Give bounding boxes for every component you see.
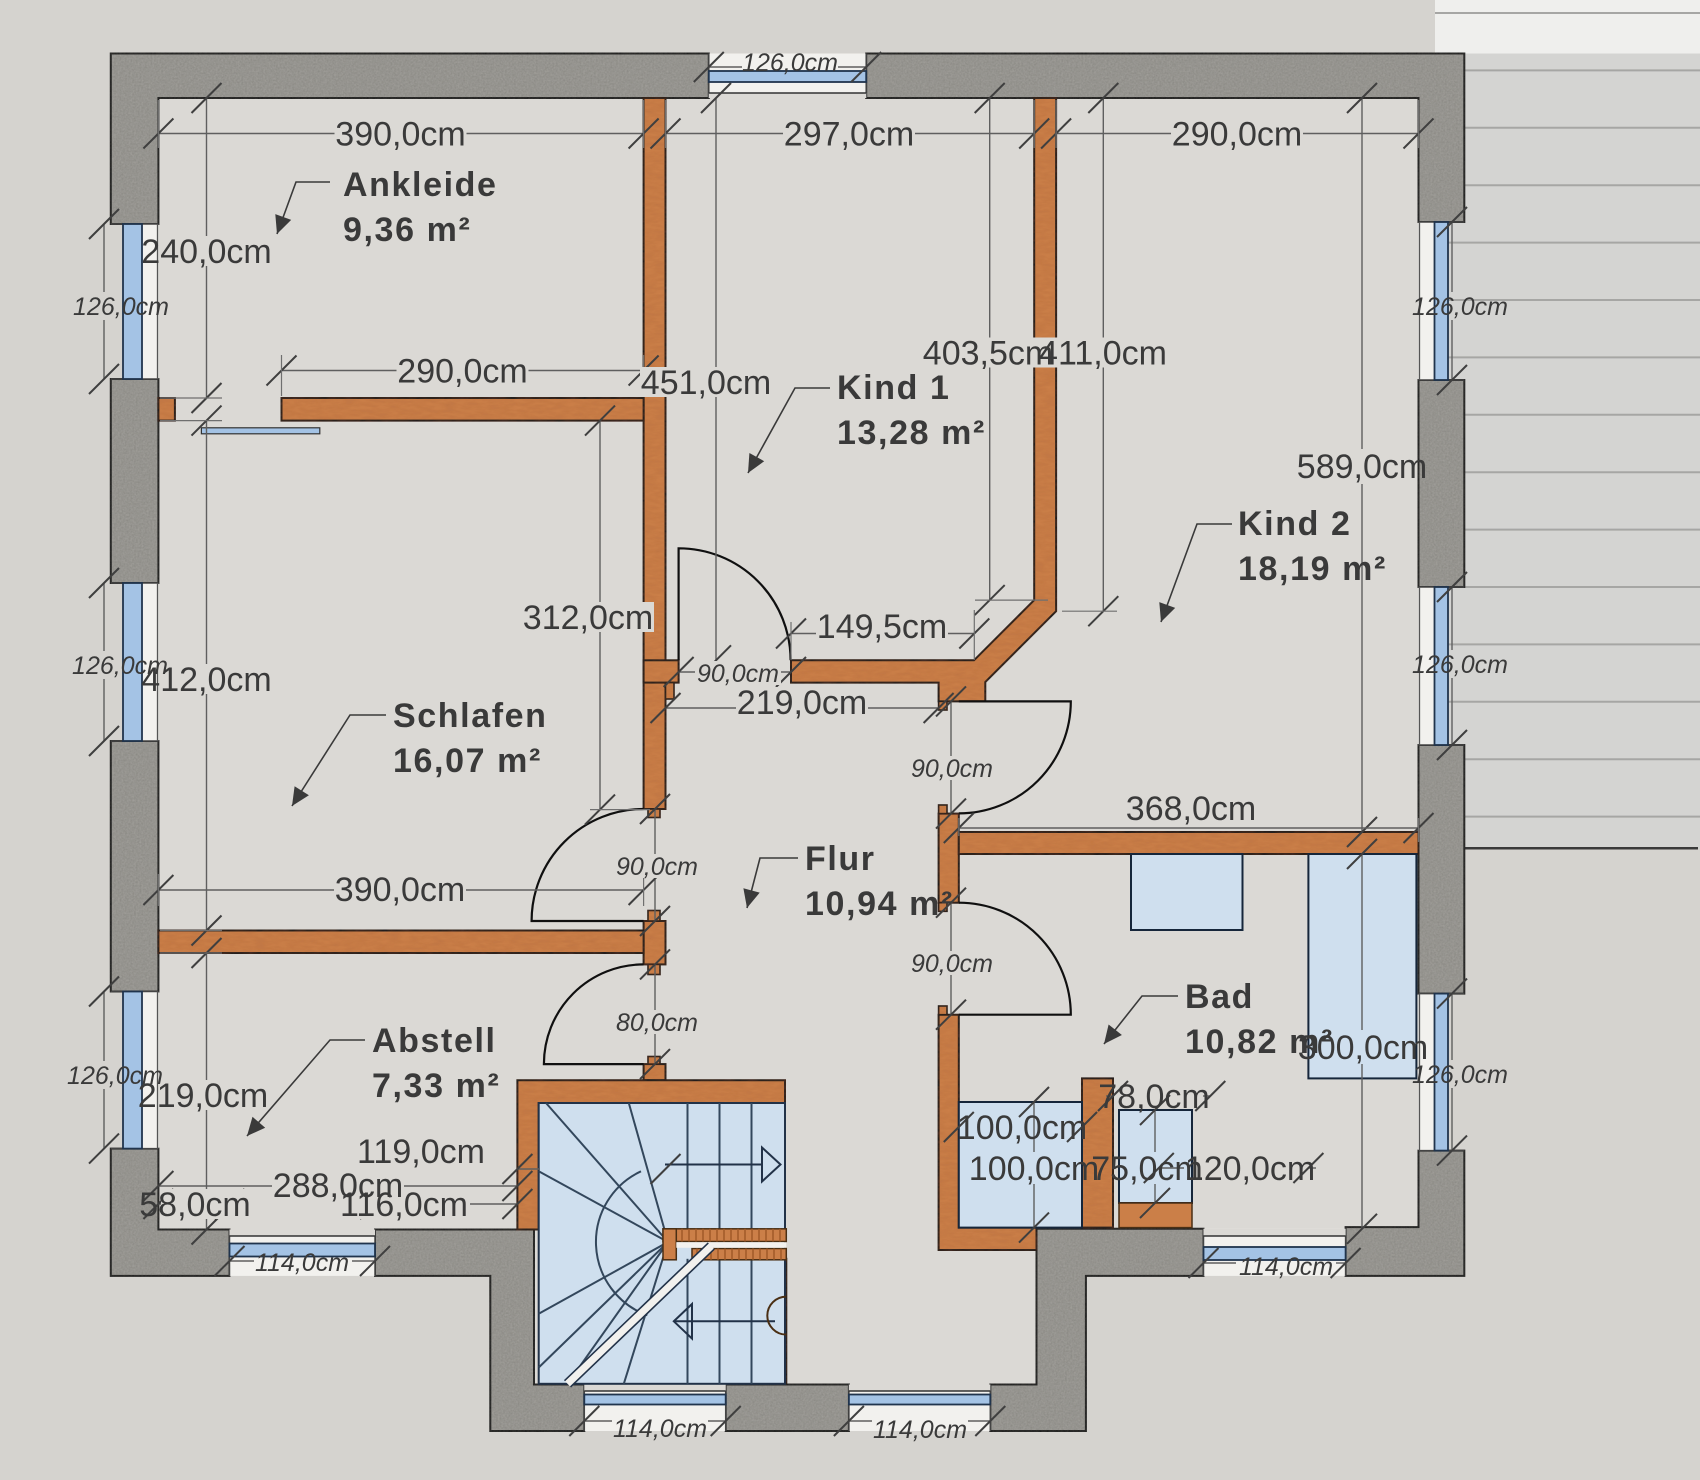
- svg-text:114,0cm: 114,0cm: [613, 1415, 707, 1443]
- svg-text:80,0cm: 80,0cm: [616, 1009, 698, 1037]
- svg-text:116,0cm: 116,0cm: [340, 1186, 468, 1224]
- svg-text:126,0cm: 126,0cm: [67, 1062, 163, 1090]
- svg-text:58,0cm: 58,0cm: [139, 1186, 251, 1224]
- svg-text:Kind 2: Kind 2: [1238, 505, 1352, 543]
- svg-text:7,33 m²: 7,33 m²: [372, 1067, 500, 1105]
- svg-text:119,0cm: 119,0cm: [357, 1133, 485, 1171]
- svg-text:13,28 m²: 13,28 m²: [837, 414, 986, 452]
- svg-text:390,0cm: 390,0cm: [335, 116, 465, 154]
- svg-text:9,36 m²: 9,36 m²: [343, 211, 471, 249]
- svg-text:90,0cm: 90,0cm: [911, 755, 993, 783]
- svg-text:290,0cm: 290,0cm: [397, 353, 527, 391]
- svg-text:90,0cm: 90,0cm: [911, 950, 993, 978]
- svg-text:Abstell: Abstell: [372, 1022, 497, 1060]
- svg-text:114,0cm: 114,0cm: [255, 1249, 349, 1277]
- svg-text:Ankleide: Ankleide: [343, 166, 498, 204]
- svg-text:126,0cm: 126,0cm: [72, 652, 168, 680]
- svg-text:100,0cm: 100,0cm: [957, 1109, 1087, 1147]
- svg-text:411,0cm: 411,0cm: [1039, 335, 1167, 373]
- svg-text:10,82 m²: 10,82 m²: [1185, 1023, 1334, 1061]
- svg-text:Schlafen: Schlafen: [393, 697, 548, 735]
- svg-text:290,0cm: 290,0cm: [1172, 116, 1302, 154]
- svg-text:10,94 m²: 10,94 m²: [805, 885, 954, 923]
- svg-text:240,0cm: 240,0cm: [141, 233, 271, 271]
- svg-text:589,0cm: 589,0cm: [1297, 448, 1427, 486]
- svg-text:126,0cm: 126,0cm: [1412, 651, 1508, 679]
- svg-text:149,5cm: 149,5cm: [817, 608, 947, 646]
- svg-text:312,0cm: 312,0cm: [523, 599, 653, 637]
- svg-text:368,0cm: 368,0cm: [1126, 790, 1256, 828]
- svg-text:126,0cm: 126,0cm: [73, 293, 169, 321]
- svg-text:18,19 m²: 18,19 m²: [1238, 550, 1387, 588]
- svg-text:Kind 1: Kind 1: [837, 369, 951, 407]
- svg-text:78,0cm: 78,0cm: [1098, 1078, 1210, 1116]
- svg-text:126,0cm: 126,0cm: [1412, 293, 1508, 321]
- svg-text:90,0cm: 90,0cm: [616, 853, 698, 881]
- svg-text:126,0cm: 126,0cm: [1412, 1061, 1508, 1089]
- svg-text:114,0cm: 114,0cm: [1239, 1253, 1333, 1281]
- svg-text:219,0cm: 219,0cm: [737, 684, 867, 722]
- svg-text:403,5cm: 403,5cm: [923, 335, 1053, 373]
- svg-text:16,07 m²: 16,07 m²: [393, 742, 542, 780]
- svg-text:120,0cm: 120,0cm: [1185, 1150, 1315, 1188]
- svg-text:390,0cm: 390,0cm: [335, 871, 465, 909]
- svg-text:90,0cm: 90,0cm: [697, 660, 779, 688]
- svg-text:297,0cm: 297,0cm: [784, 116, 914, 154]
- svg-text:126,0cm: 126,0cm: [742, 49, 838, 77]
- svg-text:100,0cm: 100,0cm: [969, 1150, 1099, 1188]
- svg-text:451,0cm: 451,0cm: [641, 364, 771, 402]
- svg-text:114,0cm: 114,0cm: [873, 1416, 967, 1444]
- svg-text:Bad: Bad: [1185, 978, 1254, 1016]
- svg-text:Flur: Flur: [805, 840, 876, 878]
